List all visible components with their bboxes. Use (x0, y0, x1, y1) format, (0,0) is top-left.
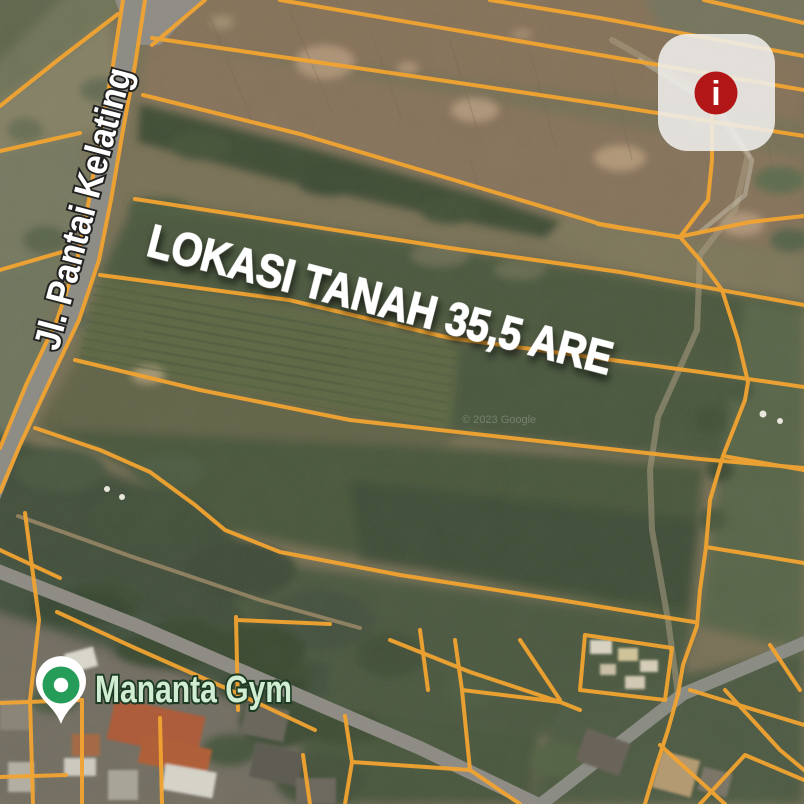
svg-text:i: i (711, 75, 720, 113)
svg-text:Mananta Gym: Mananta Gym (95, 669, 292, 711)
svg-text:© 2023 Google: © 2023 Google (462, 414, 536, 426)
